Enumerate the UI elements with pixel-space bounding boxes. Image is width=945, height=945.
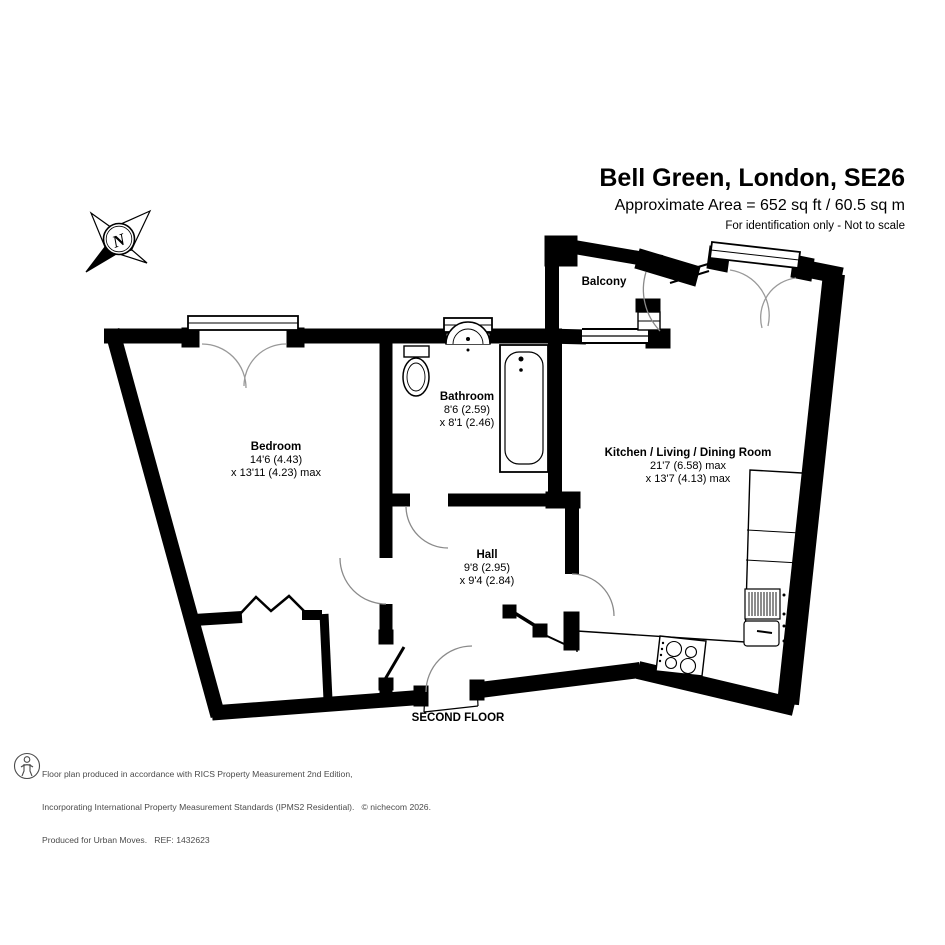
- kitchen-sink-unit-icon: [745, 589, 786, 619]
- toilet-icon: [403, 346, 429, 396]
- cupboard-door-leaf: [384, 647, 404, 681]
- bedroom-window-icon: [188, 316, 298, 388]
- room-label-hall: Hall 9'8 (2.95) x 9'4 (2.84): [460, 549, 515, 588]
- floorplan-page: N: [0, 0, 945, 945]
- compass-icon: N: [86, 211, 150, 272]
- header: Bell Green, London, SE26 Approximate Are…: [599, 164, 905, 233]
- bedroom-door-arc: [340, 558, 386, 604]
- approximate-area: Approximate Area = 652 sq ft / 60.5 sq m: [599, 196, 905, 216]
- footer-line-2: Incorporating International Property Mea…: [42, 802, 431, 813]
- bathtub-icon: [500, 345, 548, 472]
- person-scale-icon: [15, 754, 40, 779]
- oven-icon: [744, 621, 786, 646]
- room-label-bathroom: Bathroom 8'6 (2.59) x 8'1 (2.46): [440, 391, 495, 430]
- room-label-bedroom: Bedroom 14'6 (4.43) x 13'11 (4.23) max: [231, 441, 321, 480]
- closet-bifold-doors: [240, 596, 306, 614]
- footer: Floor plan produced in accordance with R…: [42, 747, 431, 868]
- hob-icon: [656, 636, 706, 676]
- lobby-door-leaf: [513, 612, 542, 630]
- kitchen-bay-window-icon: [668, 242, 800, 328]
- room-label-kitchen: Kitchen / Living / Dining Room 21'7 (6.5…: [605, 447, 772, 486]
- page-title: Bell Green, London, SE26: [599, 164, 905, 192]
- room-label-balcony: Balcony: [582, 276, 627, 289]
- kitchen-door-arc: [572, 574, 614, 616]
- floor-label: SECOND FLOOR: [412, 712, 505, 724]
- footer-line-1: Floor plan produced in accordance with R…: [42, 769, 431, 780]
- bathroom-door-arc: [406, 506, 448, 548]
- disclaimer: For identification only - Not to scale: [599, 219, 905, 233]
- front-door-arc: [426, 646, 472, 692]
- footer-line-3: Produced for Urban Moves. REF: 1432623: [42, 835, 431, 846]
